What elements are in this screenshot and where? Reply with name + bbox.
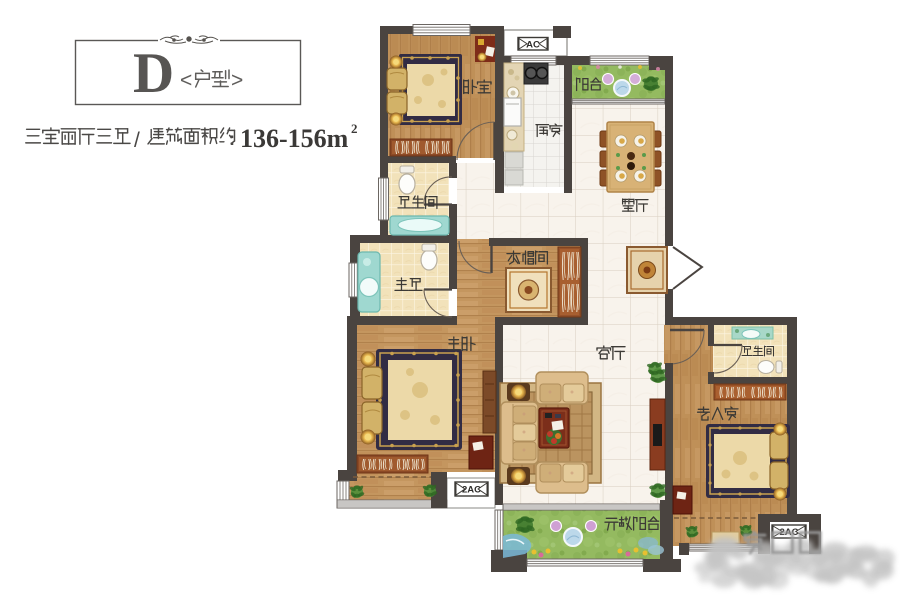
svg-text:>: > [231, 69, 243, 92]
svg-text:D: D [133, 42, 174, 105]
svg-text:136-156m: 136-156m [240, 124, 349, 153]
svg-text:AC: AC [526, 39, 540, 50]
svg-text:2AC: 2AC [462, 485, 481, 496]
svg-text:<: < [180, 69, 192, 92]
svg-text:/: / [134, 129, 140, 152]
svg-text::: : [229, 129, 235, 149]
svg-text:2: 2 [351, 121, 358, 136]
